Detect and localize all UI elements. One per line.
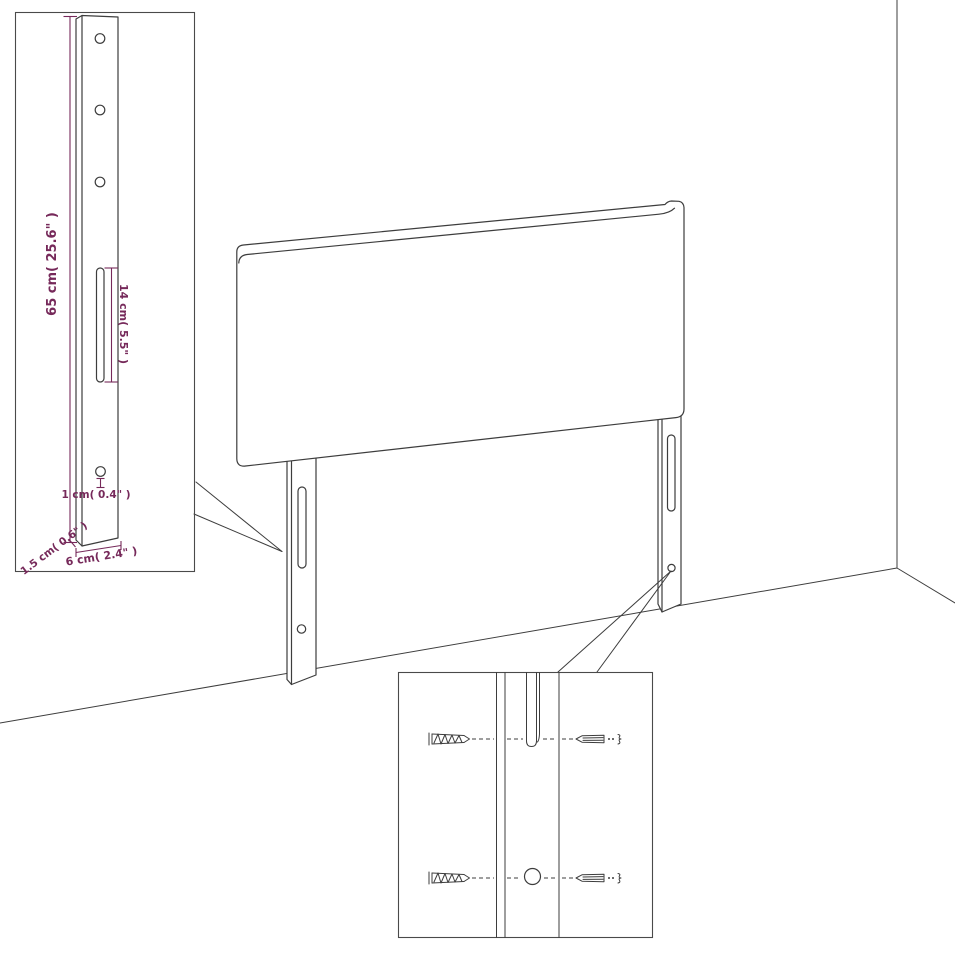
left-leg xyxy=(287,450,316,685)
keyhole-slot xyxy=(527,673,537,747)
wall-plug-icon xyxy=(576,874,621,884)
callout-line xyxy=(558,571,671,672)
screw-icon xyxy=(429,733,470,745)
dim-height-label: 65 cm( 25.6" ) xyxy=(45,212,60,316)
callout-line xyxy=(194,514,282,552)
headboard-outline xyxy=(237,201,684,466)
dim-hole-label: 1 cm( 0.4" ) xyxy=(61,489,130,501)
screw-icon xyxy=(429,872,470,884)
mount-row-slot xyxy=(429,733,621,745)
mount-hole xyxy=(525,869,541,885)
callout-line xyxy=(597,571,671,672)
mount-strip xyxy=(497,673,560,938)
dim-height: 65 cm( 25.6" ) xyxy=(45,17,77,543)
dim-width: 6 cm( 2.4" ) xyxy=(65,541,139,569)
callout-wedge-mount-detail xyxy=(558,571,671,672)
floor-line-left xyxy=(0,568,897,723)
dim-slot-label: 14 cm( 5.5" ) xyxy=(117,284,130,364)
callout-wedge-leg-detail xyxy=(194,482,282,552)
inset-mount-detail xyxy=(399,673,653,938)
headboard-panel xyxy=(237,201,684,466)
wall-plug-icon xyxy=(576,735,621,745)
dim-thickness: 1.5 cm( 0.6" ) xyxy=(18,520,89,578)
inset-border xyxy=(399,673,653,938)
right-leg xyxy=(658,408,681,612)
product-diagram: 65 cm( 25.6" ) 14 cm( 5.5" ) 1 cm( 0.4" … xyxy=(0,0,955,955)
callout-line xyxy=(196,482,282,552)
keyhole-slot-depth-line xyxy=(538,673,540,743)
inset-leg-detail: 65 cm( 25.6" ) 14 cm( 5.5" ) 1 cm( 0.4" … xyxy=(16,13,195,578)
floor-line-right xyxy=(897,568,955,603)
dim-thickness-label: 1.5 cm( 0.6" ) xyxy=(18,520,89,578)
diagram-svg: 65 cm( 25.6" ) 14 cm( 5.5" ) 1 cm( 0.4" … xyxy=(0,0,955,955)
